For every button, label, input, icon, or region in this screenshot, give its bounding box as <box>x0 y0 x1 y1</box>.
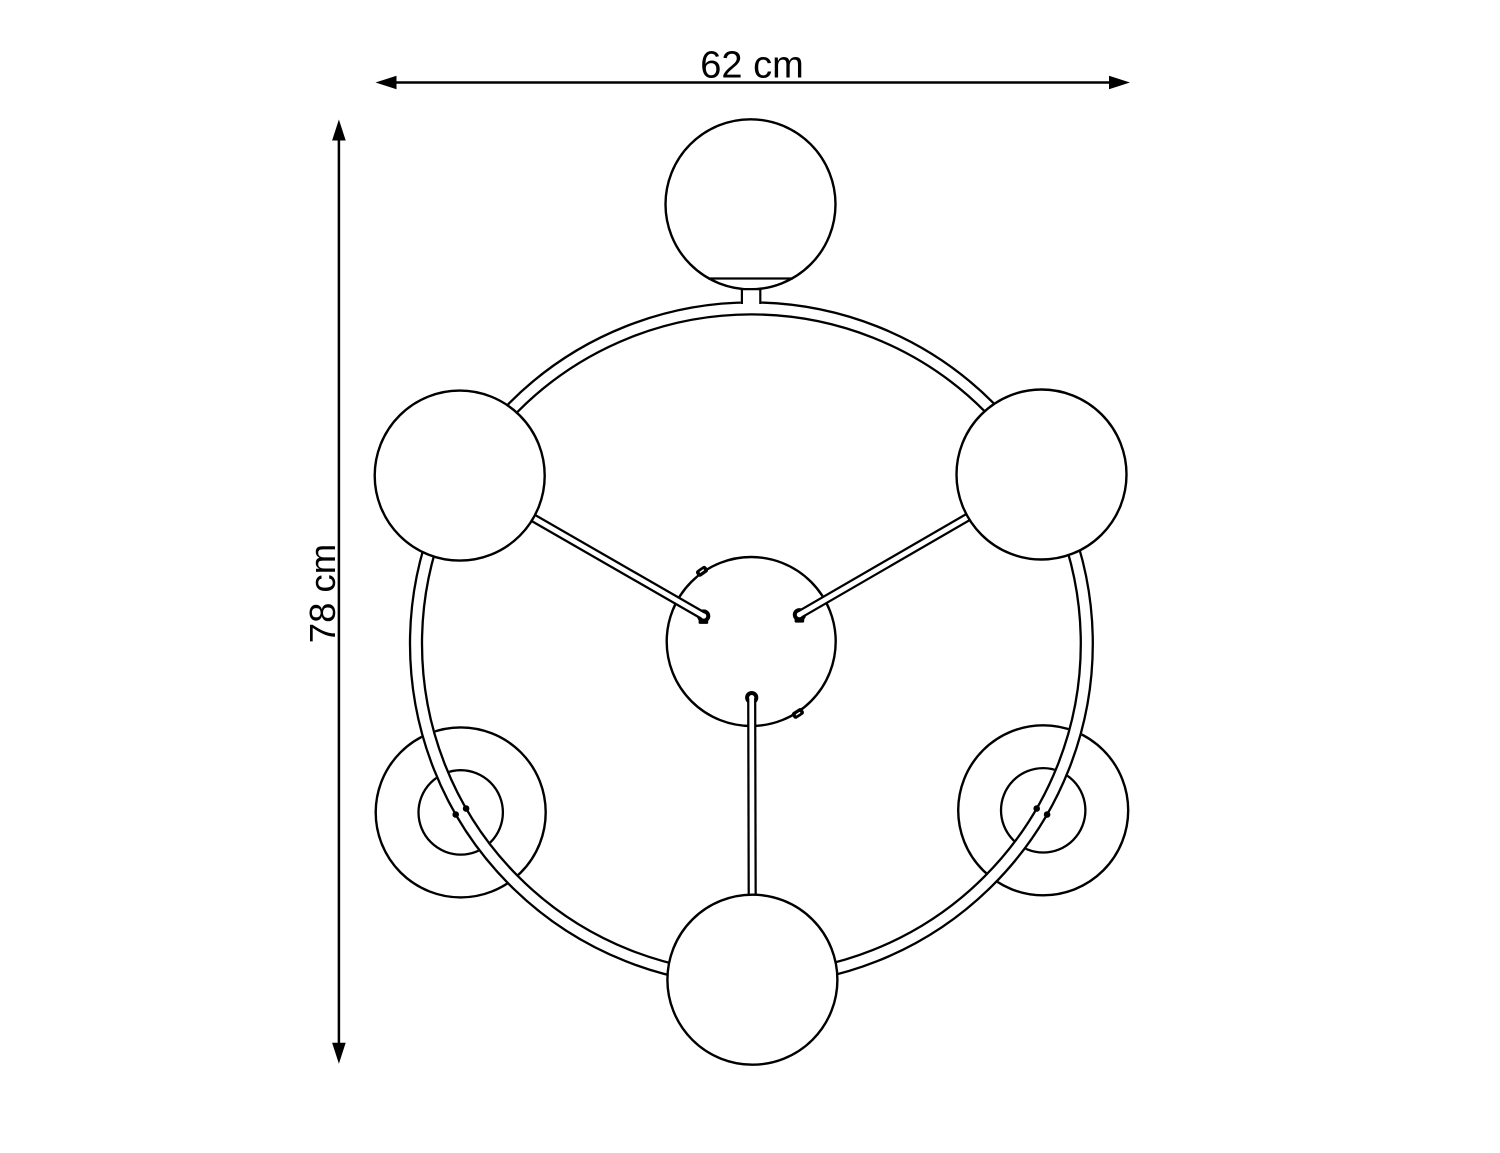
svg-text:62 cm: 62 cm <box>700 45 803 87</box>
svg-text:78 cm: 78 cm <box>302 544 343 643</box>
